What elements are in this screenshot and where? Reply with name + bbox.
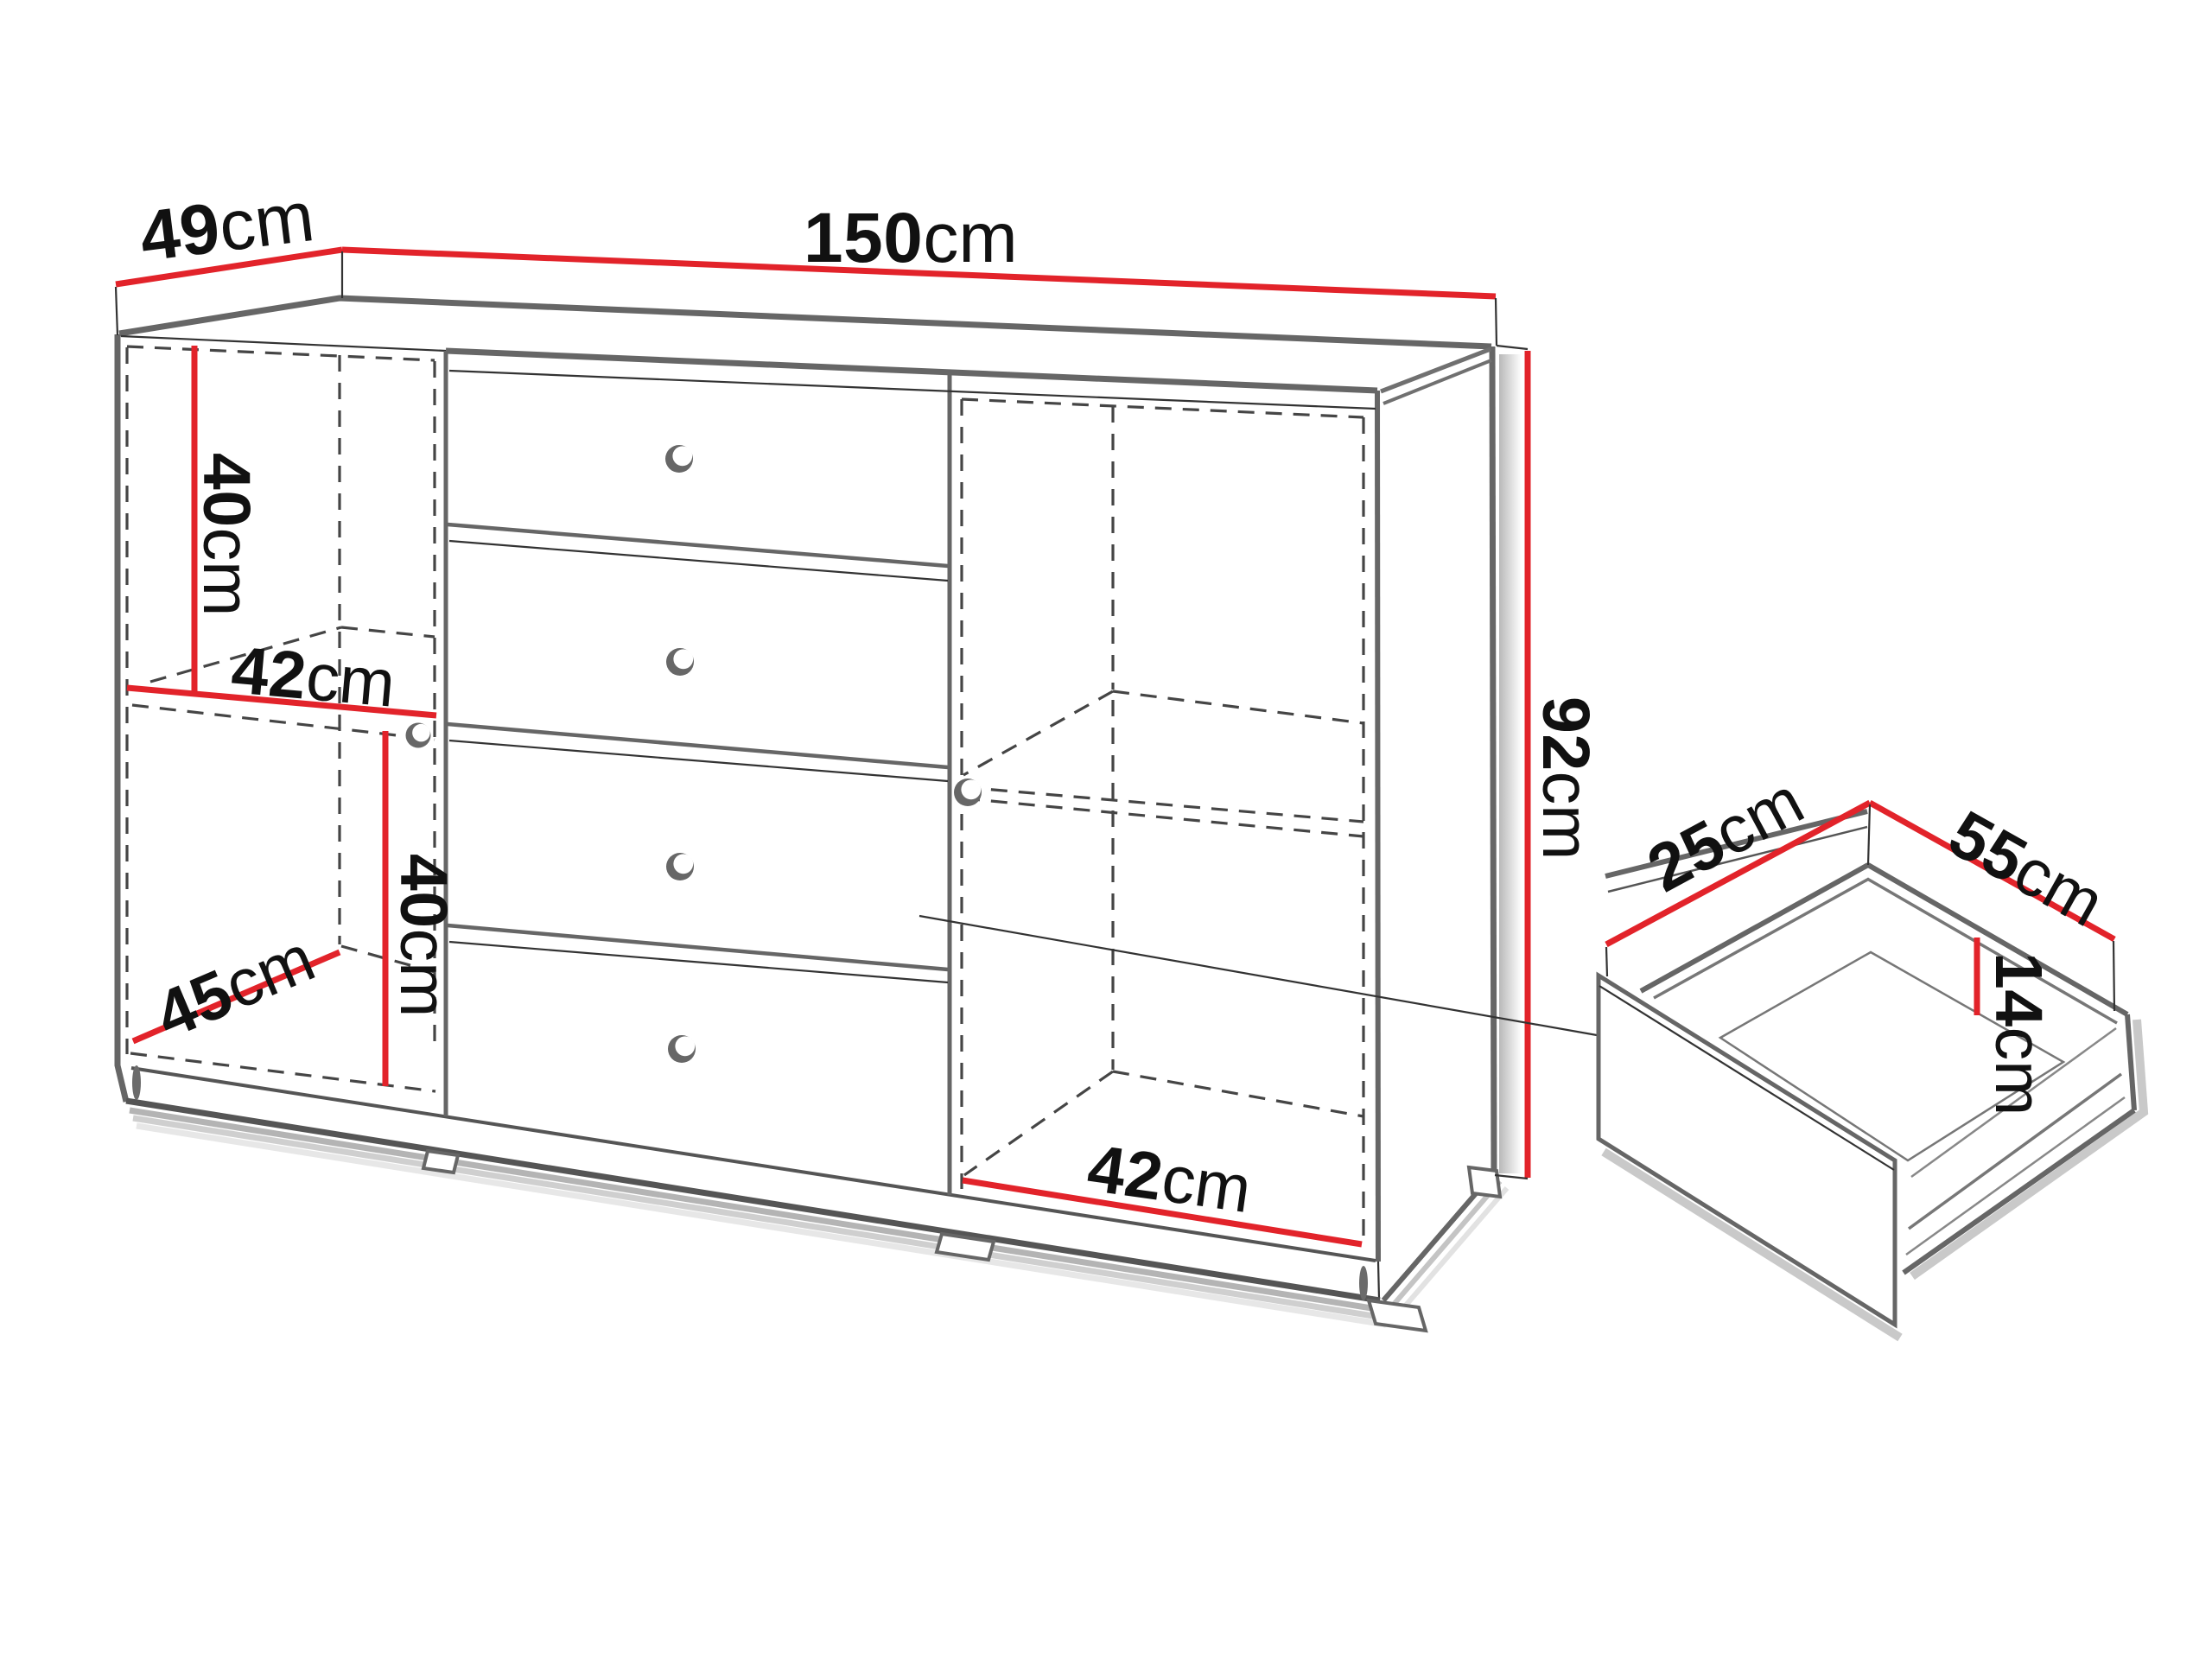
svg-text:14cm: 14cm [1981,952,2056,1116]
svg-text:42cm: 42cm [228,632,397,721]
svg-text:92cm: 92cm [1529,696,1603,860]
svg-text:150cm: 150cm [804,199,1018,277]
svg-text:40cm: 40cm [386,854,461,1017]
svg-text:40cm: 40cm [189,453,264,616]
